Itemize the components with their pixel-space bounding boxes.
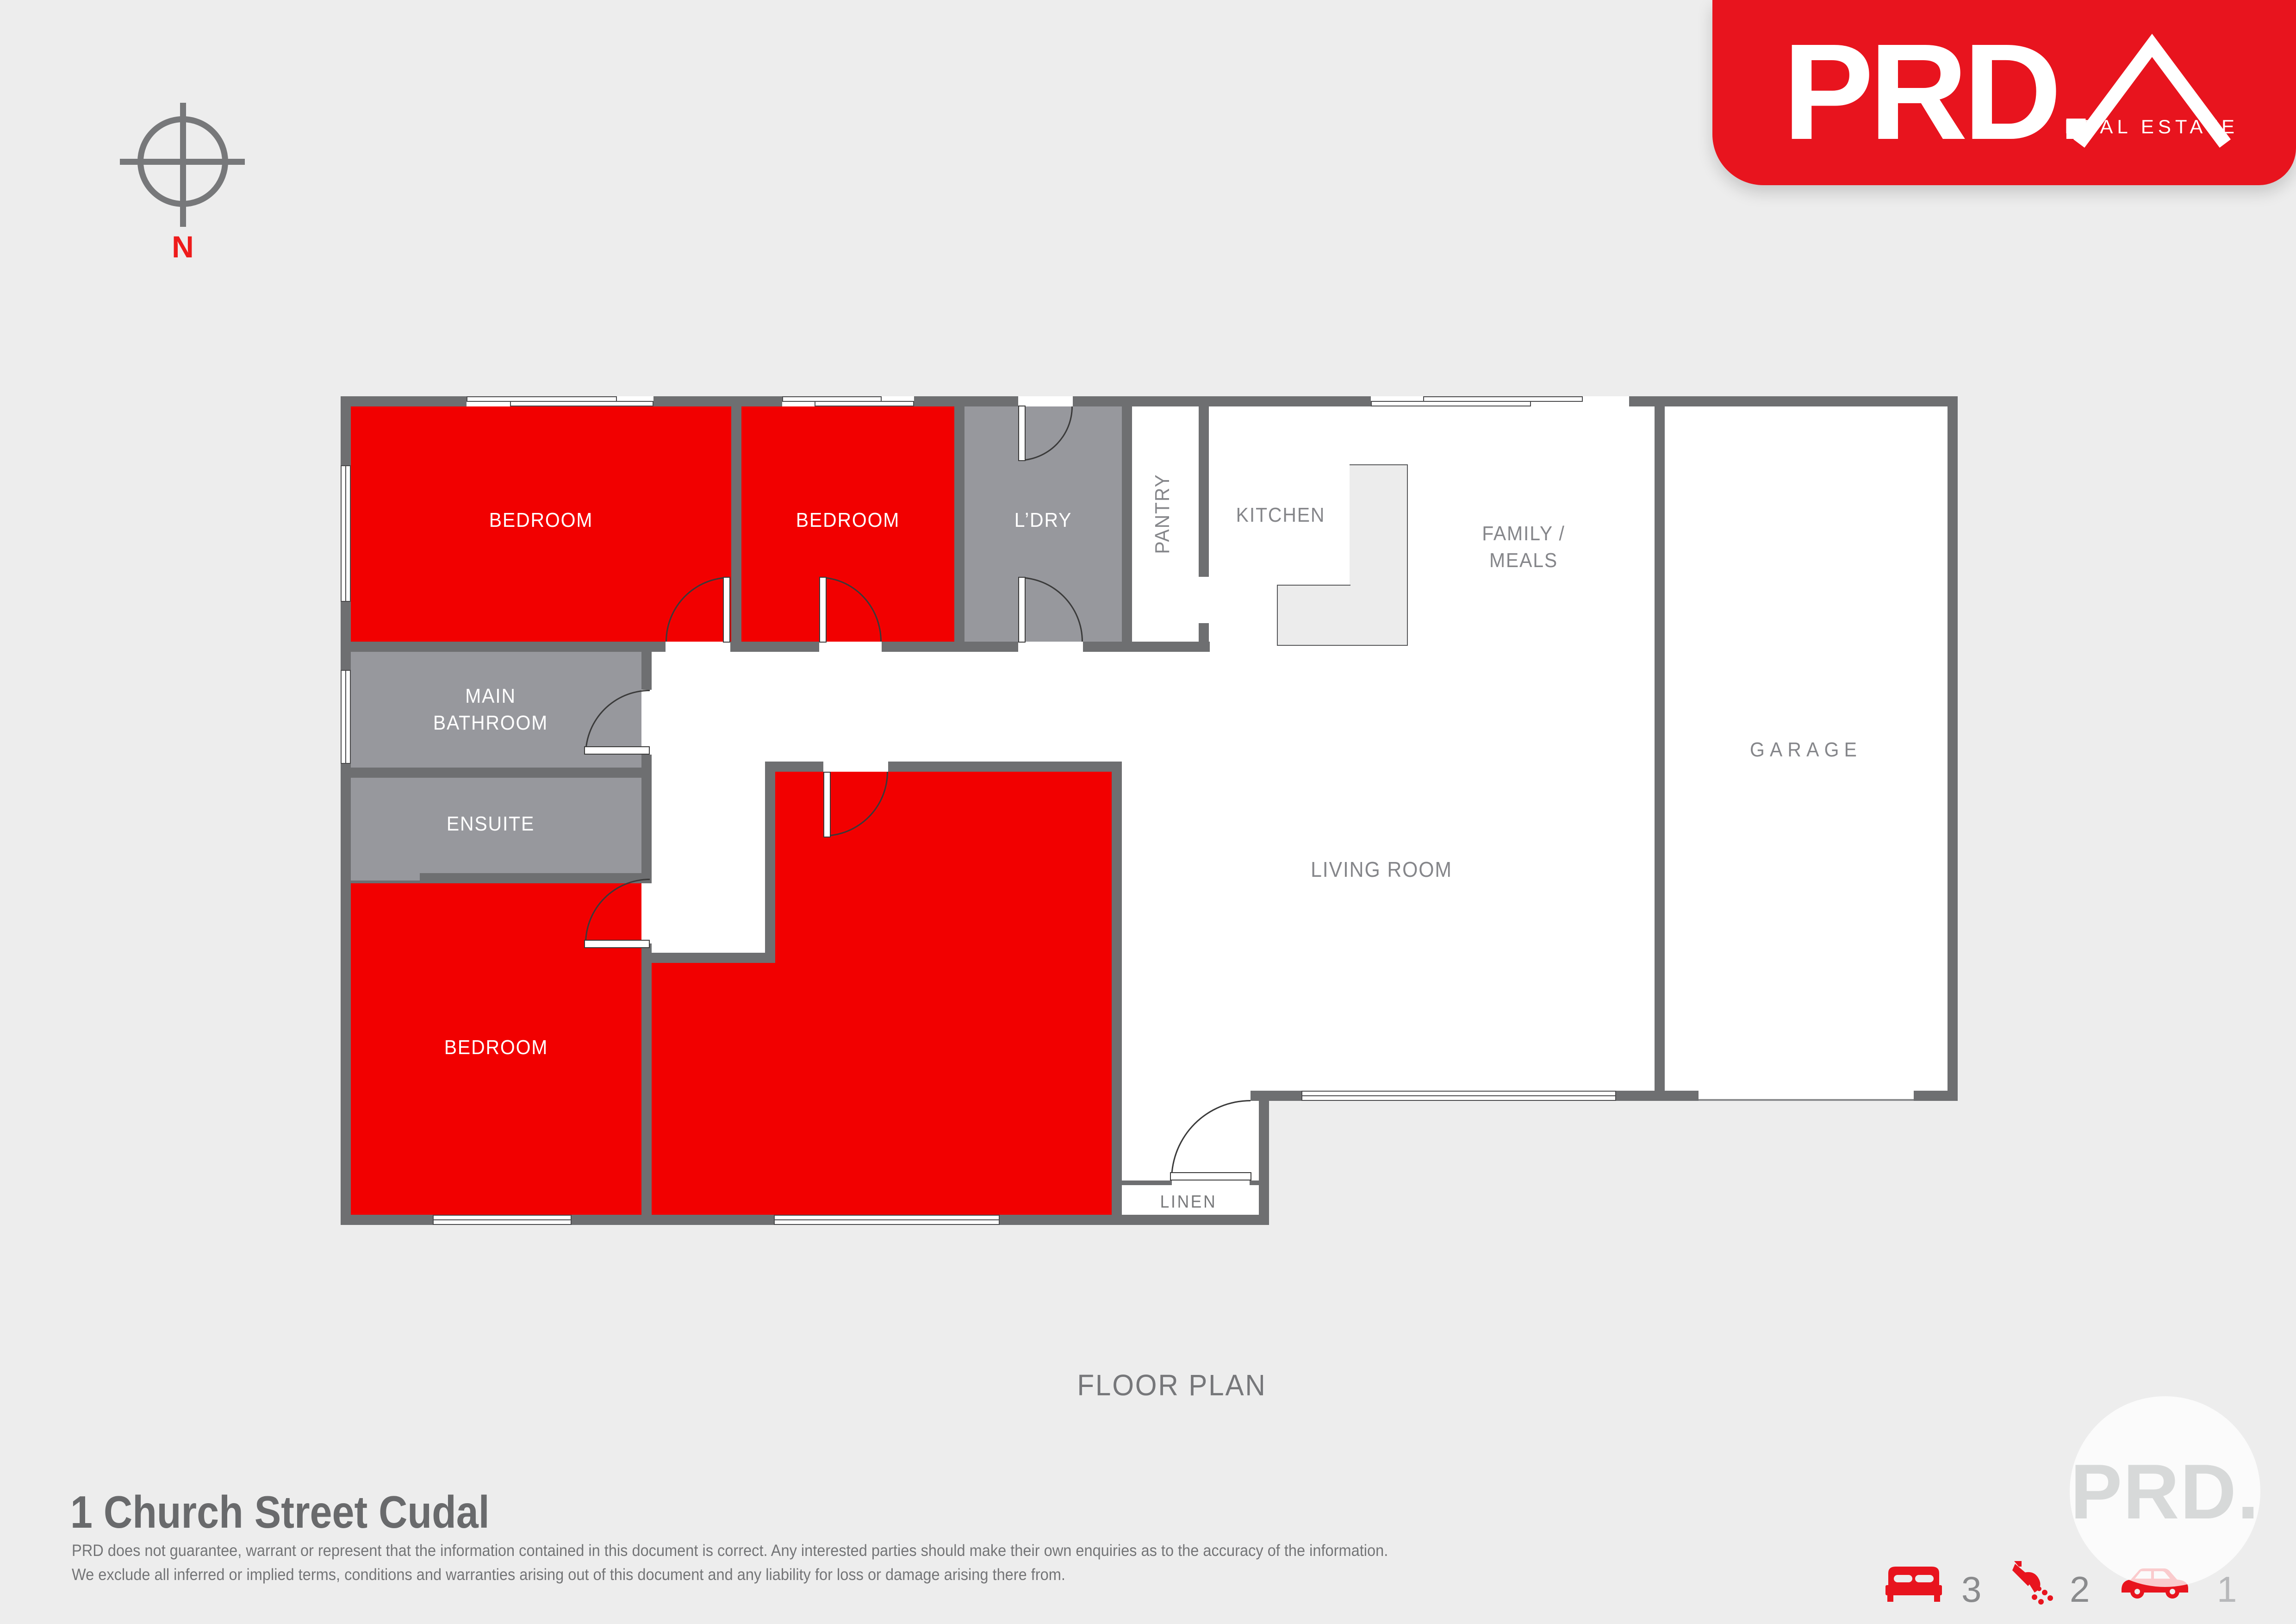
address-title: 1 Church Street Cudal <box>70 1486 490 1538</box>
wall <box>1122 406 1132 652</box>
label-garage: GARAGE <box>1750 738 1862 762</box>
kitchen-counter-step <box>1277 585 1350 646</box>
wall <box>341 642 666 652</box>
wall <box>572 1215 774 1225</box>
wall <box>341 396 467 406</box>
label-laundry: L’DRY <box>1014 509 1072 532</box>
door-leaf <box>819 577 827 643</box>
shower-icon <box>2009 1561 2057 1605</box>
wall <box>765 772 775 963</box>
prd-watermark: PRD. <box>2070 1396 2260 1587</box>
wall <box>1259 1091 1269 1225</box>
compass-north-label: N <box>172 229 194 264</box>
label-pantry: PANTRY <box>1151 474 1174 554</box>
door-leaf <box>723 577 730 643</box>
wall <box>1629 396 1958 406</box>
baths-count: 2 <box>2070 1568 2090 1611</box>
room-master-main <box>775 772 1112 1215</box>
label-bedroom-1: BEDROOM <box>489 509 593 532</box>
door-leaf <box>1018 577 1026 643</box>
label-kitchen: KITCHEN <box>1236 504 1325 527</box>
cars-count: 1 <box>2217 1568 2237 1611</box>
wall <box>954 406 964 652</box>
wall <box>1655 406 1665 1101</box>
wall <box>1199 623 1209 652</box>
wall <box>641 943 652 1225</box>
door-leaf <box>1018 406 1026 461</box>
bed-icon <box>1885 1563 1943 1603</box>
wall <box>1073 396 1371 406</box>
wall <box>653 396 782 406</box>
wall <box>341 602 351 670</box>
wall <box>1083 642 1210 652</box>
compass-horizontal-line <box>120 159 245 165</box>
window-line <box>345 466 346 601</box>
disclaimer-line-2: We exclude all inferred or implied terms… <box>72 1566 1065 1584</box>
garage-door <box>1699 1091 1914 1101</box>
compass-vertical-line <box>180 103 186 227</box>
wall <box>1250 1181 1259 1185</box>
wall <box>641 755 652 879</box>
wall <box>730 642 819 652</box>
window-line <box>434 1219 571 1220</box>
label-family-meals: FAMILY / MEALS <box>1482 520 1565 574</box>
window <box>815 401 914 406</box>
kitchen-counter <box>1350 464 1408 646</box>
door-leaf <box>584 940 650 948</box>
wall <box>1199 406 1209 577</box>
wall <box>652 953 775 963</box>
wall <box>420 873 652 883</box>
wall <box>765 762 823 772</box>
wall <box>1948 396 1958 1101</box>
prd-logo-banner: PRD. REAL ESTATE <box>1712 0 2296 185</box>
window <box>510 401 653 406</box>
disclaimer-line-1: PRD does not guarantee, warrant or repre… <box>72 1542 1388 1560</box>
door-leaf <box>584 746 650 755</box>
wall <box>731 406 741 652</box>
window <box>1371 401 1531 406</box>
wall <box>914 396 1018 406</box>
front-door-leaf <box>1170 1172 1251 1181</box>
prd-watermark-text: PRD. <box>2070 1447 2259 1537</box>
room-ensuite-notch <box>351 873 420 881</box>
label-main-bathroom: MAIN BATHROOM <box>433 683 548 737</box>
wall <box>341 1215 433 1225</box>
prd-logo-tagline: REAL ESTATE <box>2065 116 2239 138</box>
floor-plan-title: FLOOR PLAN <box>1077 1368 1266 1402</box>
label-ensuite: ENSUITE <box>447 812 535 836</box>
wall <box>888 762 1122 772</box>
wall <box>882 642 1018 652</box>
window-line <box>345 671 346 763</box>
label-living-room: LIVING ROOM <box>1311 857 1452 882</box>
window-line <box>1302 1095 1615 1096</box>
label-bedroom-2: BEDROOM <box>796 509 900 532</box>
wall <box>341 768 652 778</box>
beds-count: 3 <box>1961 1568 1981 1611</box>
wall <box>341 764 351 1225</box>
wall <box>1121 1181 1172 1185</box>
wall <box>1112 762 1122 1225</box>
wall <box>641 652 652 690</box>
wall <box>1251 1091 1301 1101</box>
wall <box>341 396 351 465</box>
wall <box>1000 1215 1269 1225</box>
label-bedroom-3: BEDROOM <box>444 1036 548 1059</box>
window-line <box>775 1219 999 1220</box>
room-master-leg <box>652 963 775 1215</box>
wall <box>1914 1091 1958 1101</box>
prd-logo-wordmark: PRD. <box>1783 13 2091 170</box>
label-linen: LINEN <box>1160 1193 1217 1212</box>
page: PRD. REAL ESTATE N <box>0 0 2296 1624</box>
door-leaf <box>823 772 831 837</box>
